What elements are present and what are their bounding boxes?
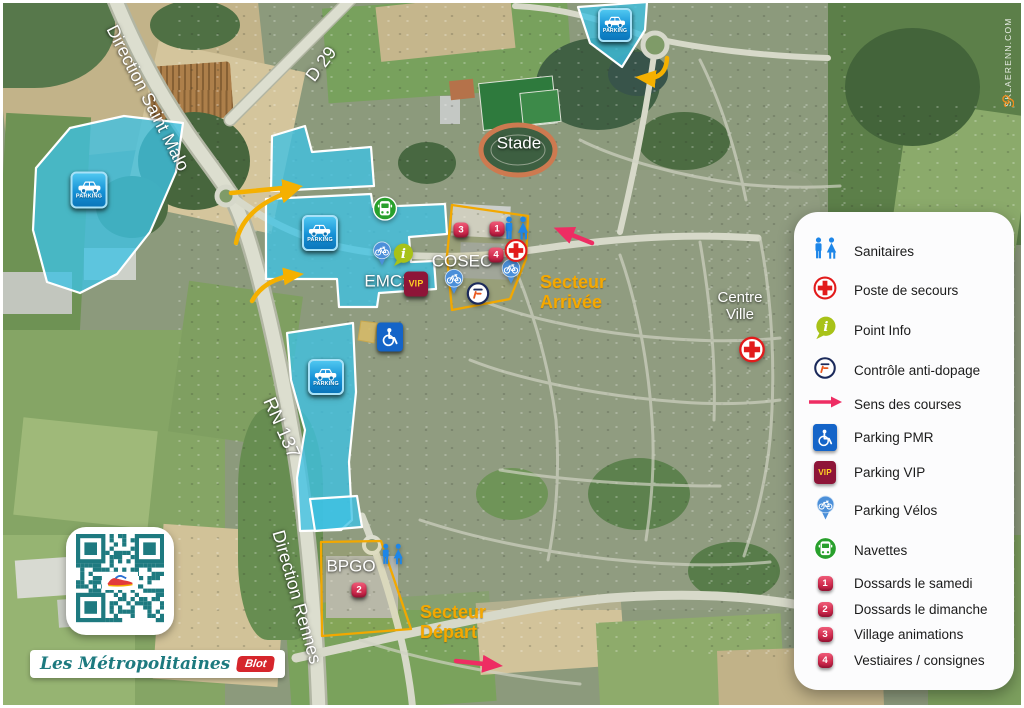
legend-item-pmr: Parking PMR [794,424,1014,451]
legend-item-sanitaires: Sanitaires [794,237,1014,265]
dossard-3-icon: 3 [454,223,469,238]
marker-pmr [377,322,403,351]
dossard-number: 1 [494,224,499,235]
legend-item-num3: 3Village animations [794,627,1014,642]
legend-item-label: Dossards le dimanche [854,602,988,617]
marker-dossard-3: 3 [454,223,469,238]
legend-icon-cell: 1 [805,576,845,591]
dossard-2-icon: 2 [352,583,367,598]
sanitaires-icon [812,237,838,265]
credit-spiral-icon [1001,94,1014,112]
legend-icon-cell: i [805,315,845,345]
legend-icon-cell [805,356,845,385]
shoe-logo-icon [102,572,138,590]
dossard-number: 4 [822,655,827,666]
legend-item-dopage: Contrôle anti-dopage [794,356,1014,385]
dopage-icon [466,281,491,311]
pmr-icon [377,322,403,351]
dossard-1-icon: 1 [818,576,833,591]
dossard-1-icon: 1 [490,222,505,237]
marker-navette [372,196,398,227]
dossard-2-icon: 2 [818,602,833,617]
parking-icon-label: PARKING [603,29,627,34]
legend-item-label: Point Info [854,323,911,338]
parking-icon-label: PARKING [76,195,102,201]
dossard-number: 3 [458,225,463,236]
legend-item-label: Parking PMR [854,430,934,445]
dossard-number: 4 [493,250,498,261]
dossard-number: 2 [356,585,361,596]
parking-icon: PARKING [302,215,338,251]
sanitaires-icon [380,543,405,570]
dossard-number: 1 [822,578,827,589]
velo-icon [815,495,836,525]
velo-icon [443,268,465,299]
svg-text:i: i [401,246,406,262]
marker-dossard-4: 4 [489,248,504,263]
sponsor-badge: Blot [236,656,276,672]
legend-item-arrow: Sens des courses [794,395,1014,413]
legend-item-label: Sanitaires [854,244,914,259]
legend-icon-cell: VIP [805,461,845,484]
legend-item-num1: 1Dossards le samedi [794,576,1014,591]
arrow-icon [807,395,843,413]
legend-item-label: Vestiaires / consignes [854,653,985,668]
vip-icon: VIP [814,461,836,484]
legend-panel: Sanitaires Poste de secours iPoint Info … [794,212,1014,690]
parking-icon: PARKING [598,8,632,42]
legend-icon-cell [805,536,845,566]
navette-icon [813,536,838,566]
parking-icon: PARKING [71,172,108,209]
legend-item-navette: Navettes [794,536,1014,566]
marker-info: i [391,242,416,272]
event-logo-text: Les Métropolitaines [40,654,230,674]
marker-redcross [504,239,528,268]
navette-icon [372,196,398,227]
legend-icon-cell: 2 [805,602,845,617]
marker-parking: PARKING [598,8,632,42]
dossard-number: 2 [822,604,827,615]
event-logo-banner: Les Métropolitaines Blot [30,650,285,678]
marker-vip: VIP [404,272,428,297]
redcross-icon [504,239,528,268]
marker-parking: PARKING [302,215,338,251]
marker-velo [372,241,393,271]
marker-dossard-1: 1 [490,222,505,237]
legend-item-label: Village animations [854,627,963,642]
dossard-4-icon: 4 [818,653,833,668]
legend-icon-cell [805,424,845,451]
metropolitaines-access-map: Direction Saint MaloD 29StadeCOSECEMC2Ce… [0,0,1024,708]
legend-item-redcross: Poste de secours [794,276,1014,305]
marker-sanitaires [380,543,405,570]
info-icon: i [813,315,838,345]
info-icon: i [391,242,416,272]
legend-item-label: Dossards le samedi [854,576,973,591]
marker-velo [443,268,465,299]
vip-icon-label: VIP [409,279,424,289]
legend-icon-cell [805,237,845,265]
legend-item-label: Parking Vélos [854,503,937,518]
legend-icon-cell: 4 [805,653,845,668]
dossard-3-icon: 3 [818,627,833,642]
vip-icon-label: VIP [818,468,832,477]
marker-dopage [466,281,491,311]
dossard-4-icon: 4 [489,248,504,263]
legend-icon-cell [805,276,845,305]
parking-icon: PARKING [308,359,344,395]
legend-icon-cell [805,395,845,413]
pmr-icon [813,424,837,451]
legend-item-velo: Parking Vélos [794,495,1014,525]
dopage-icon [813,356,837,385]
marker-parking: PARKING [308,359,344,395]
redcross-icon [813,276,837,305]
dossard-number: 3 [822,629,827,640]
marker-redcross [739,336,766,368]
qr-code [66,527,174,635]
legend-item-num4: 4Vestiaires / consignes [794,653,1014,668]
legend-item-info: iPoint Info [794,315,1014,345]
legend-item-label: Contrôle anti-dopage [854,363,980,378]
legend-item-num2: 2Dossards le dimanche [794,602,1014,617]
legend-item-label: Sens des courses [854,397,961,412]
legend-item-label: Navettes [854,543,907,558]
marker-dossard-2: 2 [352,583,367,598]
legend-icon-cell [805,495,845,525]
legend-item-vip: VIPParking VIP [794,461,1014,484]
redcross-icon [739,336,766,368]
legend-item-label: Parking VIP [854,465,925,480]
marker-parking: PARKING [71,172,108,209]
vip-icon: VIP [404,272,428,297]
svg-text:i: i [823,319,828,335]
velo-icon [372,241,393,271]
legend-icon-cell: 3 [805,627,845,642]
parking-icon-label: PARKING [307,238,333,243]
parking-icon-label: PARKING [313,382,339,387]
legend-item-label: Poste de secours [854,283,958,298]
